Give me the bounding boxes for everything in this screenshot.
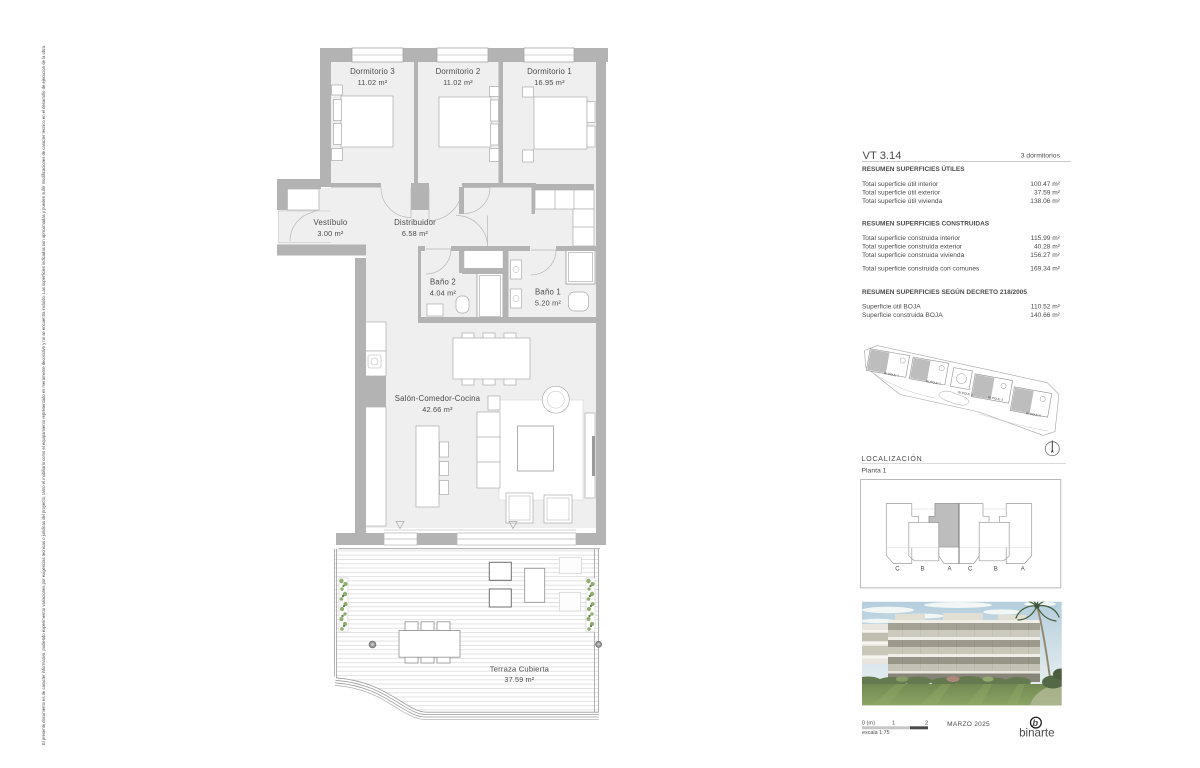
svg-text:40.28 m²: 40.28 m² <box>1034 244 1061 251</box>
svg-text:42.66 m²: 42.66 m² <box>422 405 453 414</box>
svg-text:5.20 m²: 5.20 m² <box>535 299 562 308</box>
svg-text:LOCALIZACIÓN: LOCALIZACIÓN <box>862 454 923 463</box>
svg-text:C: C <box>895 567 900 573</box>
svg-text:Total superficie construida in: Total superficie construida interior <box>862 235 961 242</box>
svg-text:115.99 m²: 115.99 m² <box>1031 235 1061 242</box>
svg-text:11.02 m²: 11.02 m² <box>358 78 388 87</box>
svg-text:MARZO 2025: MARZO 2025 <box>947 721 990 728</box>
svg-text:16.95 m²: 16.95 m² <box>534 78 565 87</box>
svg-text:37.59 m²: 37.59 m² <box>1034 190 1061 197</box>
svg-text:A: A <box>947 567 951 573</box>
svg-text:VT 3.14: VT 3.14 <box>863 150 902 162</box>
svg-text:11.02 m²: 11.02 m² <box>443 78 473 87</box>
svg-text:RESUMEN SUPERFICIES CONSTRUIDA: RESUMEN SUPERFICIES CONSTRUIDAS <box>862 220 990 227</box>
svg-text:Baño 2: Baño 2 <box>430 278 456 287</box>
svg-text:Total superficie útil vivienda: Total superficie útil vivienda <box>862 198 943 205</box>
svg-text:Dormitorio 1: Dormitorio 1 <box>527 67 572 76</box>
svg-text:4.04 m²: 4.04 m² <box>430 289 457 298</box>
svg-text:binarte: binarte <box>1019 727 1054 740</box>
svg-text:RESUMEN SUPERFICIES ÚTILES: RESUMEN SUPERFICIES ÚTILES <box>862 164 965 173</box>
svg-text:Dormitorio 2: Dormitorio 2 <box>436 67 481 76</box>
svg-text:Superficie construida BOJA: Superficie construida BOJA <box>862 312 943 319</box>
svg-text:Total superficie útil interior: Total superficie útil interior <box>862 181 939 188</box>
svg-text:escala 1:75: escala 1:75 <box>862 730 890 736</box>
svg-text:Distribuidor: Distribuidor <box>394 218 436 227</box>
svg-text:Baño 1: Baño 1 <box>535 288 561 297</box>
svg-text:140.66 m²: 140.66 m² <box>1030 312 1060 319</box>
svg-text:RESUMEN SUPERFICIES SEGÚN DECR: RESUMEN SUPERFICIES SEGÚN DECRETO 218/20… <box>862 287 1027 296</box>
svg-text:156.27 m²: 156.27 m² <box>1030 252 1060 259</box>
svg-text:Superficie útil BOJA: Superficie útil BOJA <box>862 303 921 310</box>
svg-text:2: 2 <box>925 720 928 726</box>
svg-text:Total superficie construida ex: Total superficie construida exterior <box>862 244 963 251</box>
svg-text:1: 1 <box>892 720 895 726</box>
svg-text:Total superficie útil exterior: Total superficie útil exterior <box>862 190 941 197</box>
svg-text:100.47 m²: 100.47 m² <box>1030 181 1060 188</box>
svg-text:B: B <box>994 567 998 573</box>
svg-text:A: A <box>1021 567 1025 573</box>
svg-text:37.59 m²: 37.59 m² <box>504 675 534 684</box>
svg-text:110.52 m²: 110.52 m² <box>1031 303 1061 310</box>
svg-text:138.06 m²: 138.06 m² <box>1030 198 1060 205</box>
svg-text:El presente documento es de ca: El presente documento es de caracter inf… <box>41 45 46 745</box>
svg-text:6.58 m²: 6.58 m² <box>402 229 429 238</box>
svg-text:Planta 1: Planta 1 <box>862 467 887 474</box>
svg-text:Total superficie construida co: Total superficie construida con comunes <box>862 265 980 272</box>
svg-text:C: C <box>968 567 973 573</box>
svg-text:B: B <box>921 567 925 573</box>
svg-text:Salón-Comedor-Cocina: Salón-Comedor-Cocina <box>395 394 481 403</box>
svg-text:Dormitorio 3: Dormitorio 3 <box>350 67 395 76</box>
svg-text:Vestíbulo: Vestíbulo <box>314 218 348 227</box>
svg-text:3 dormitorios: 3 dormitorios <box>1021 153 1061 160</box>
svg-text:169.34 m²: 169.34 m² <box>1030 265 1060 272</box>
svg-text:3.00 m²: 3.00 m² <box>317 229 344 238</box>
svg-text:0 (m): 0 (m) <box>862 720 875 726</box>
svg-text:Total superficie construida vi: Total superficie construida vivienda <box>862 252 965 259</box>
svg-text:Terraza Cubierta: Terraza Cubierta <box>490 665 550 674</box>
